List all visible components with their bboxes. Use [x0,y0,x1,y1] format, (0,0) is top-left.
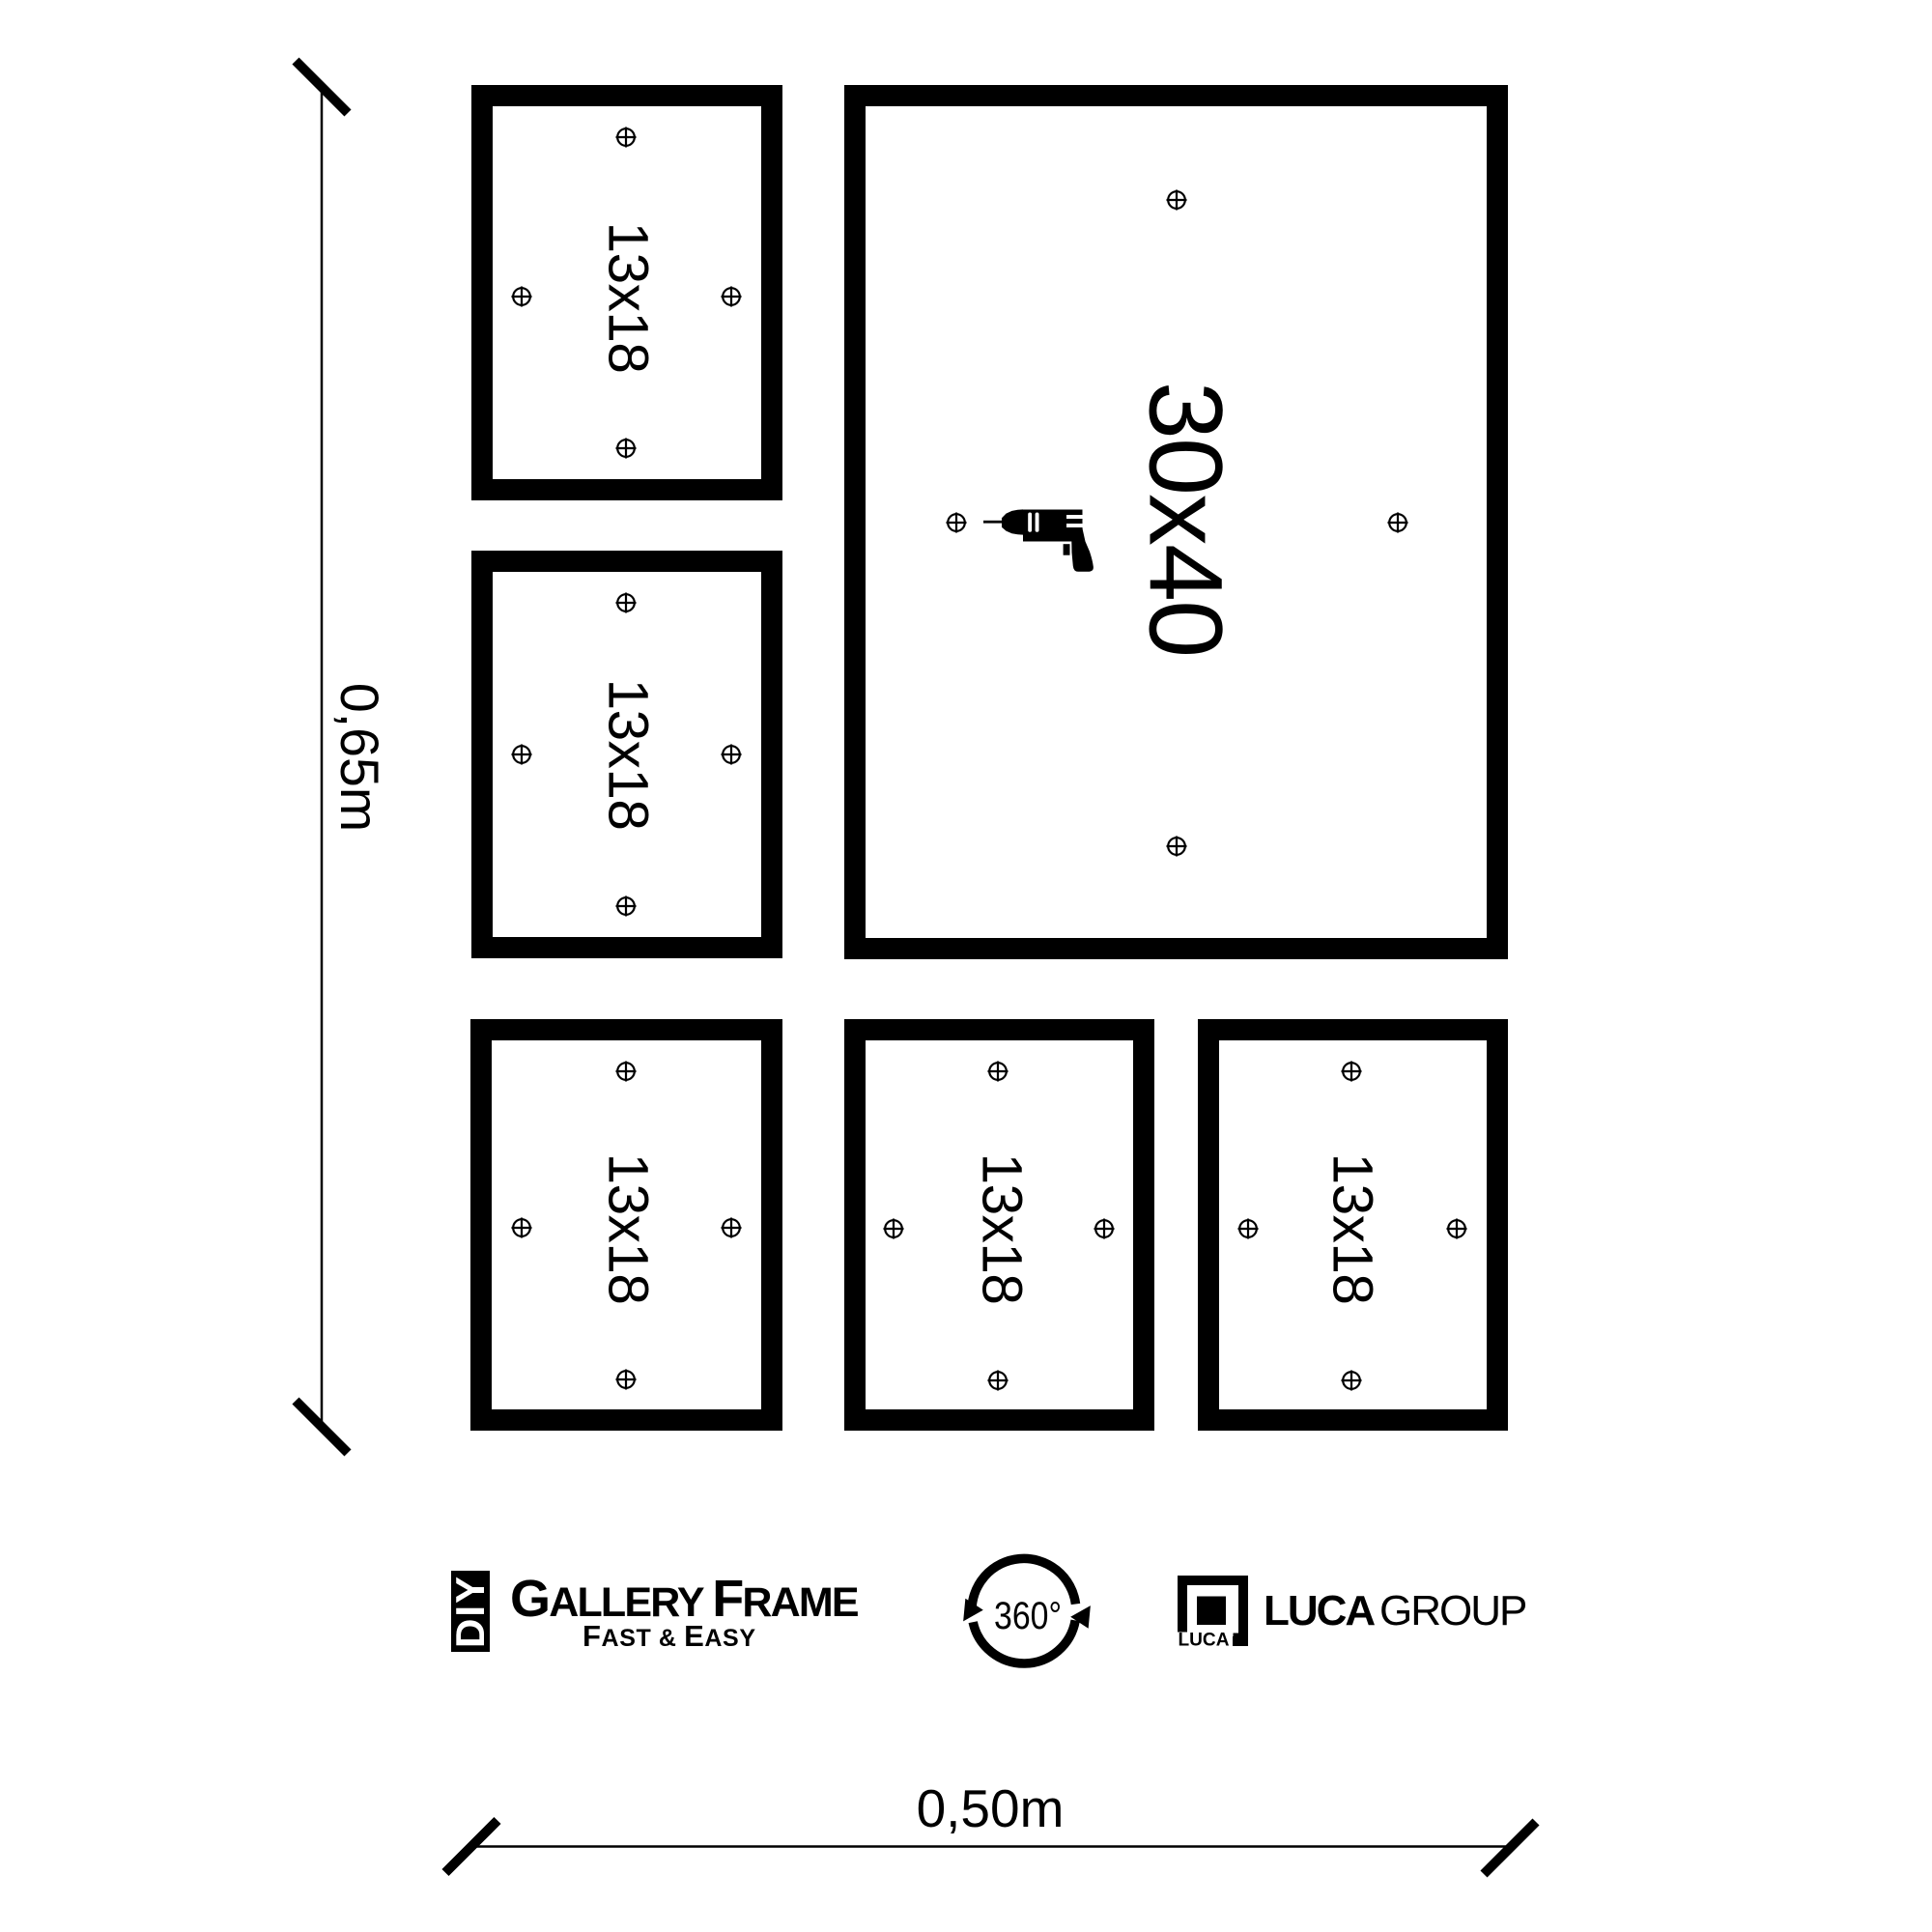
svg-text:13x18: 13x18 [1321,1153,1384,1305]
svg-text:13x18: 13x18 [597,1153,660,1305]
svg-text:LUCA: LUCA [1264,1587,1375,1634]
svg-text:13x18: 13x18 [971,1153,1034,1305]
svg-text:13x18: 13x18 [597,679,660,831]
svg-text:30x40: 30x40 [1128,382,1245,656]
svg-text:LUCA: LUCA [1179,1630,1230,1651]
svg-text:0,50m: 0,50m [917,1778,1065,1838]
svg-text:DIY: DIY [447,1575,493,1648]
svg-text:FAST & EASY: FAST & EASY [582,1619,756,1653]
svg-text:0,65m: 0,65m [329,683,389,832]
svg-text:GROUP: GROUP [1379,1587,1526,1634]
svg-text:360°: 360° [994,1595,1062,1637]
svg-text:13x18: 13x18 [597,222,660,374]
